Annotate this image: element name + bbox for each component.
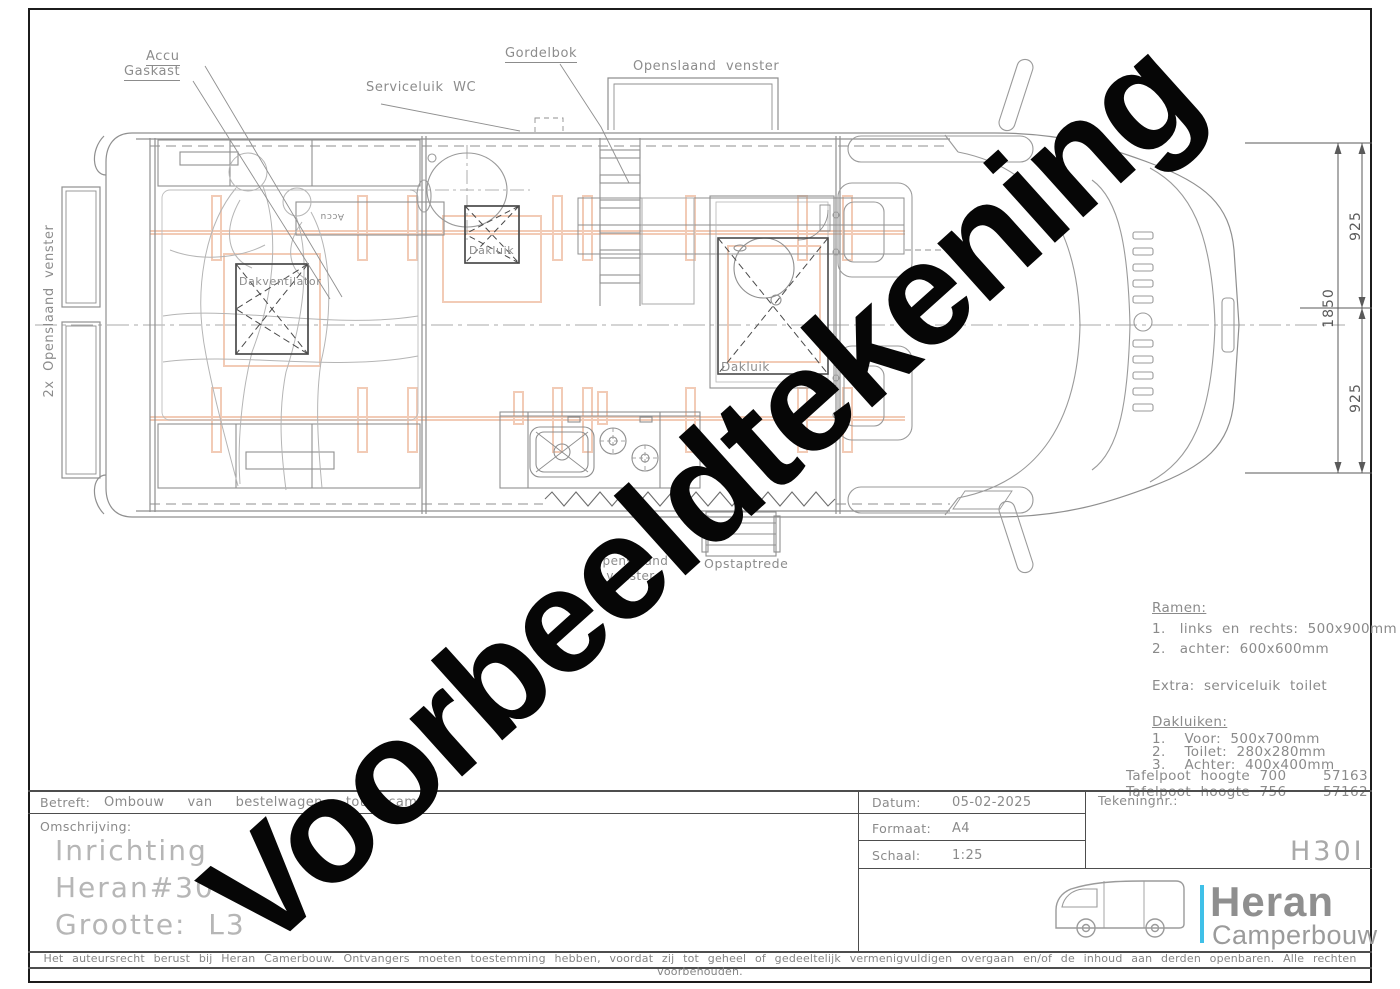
omschrijving-line-3: Grootte: L3: [55, 908, 246, 941]
camper-floorplan-drawing: [0, 0, 1400, 989]
titleblock-col-divider-1: [858, 790, 859, 951]
dakluiken-title: Dakluiken:: [1152, 714, 1227, 730]
dim-925-voor: 925: [1348, 211, 1364, 241]
openslaand-venster-left-label: 2x Openslaand venster: [43, 225, 57, 398]
tekeningnr-value: H30I: [1290, 836, 1365, 867]
titleblock-top-border: [28, 790, 1372, 792]
grille-slats: [1133, 232, 1153, 411]
copyright-text: Het auteursrecht berust bij Heran Camerb…: [28, 952, 1372, 978]
drawing-sheet: Accu Gaskast Serviceluik WC Gordelbok Op…: [0, 0, 1400, 989]
opstaptrede-step: [702, 512, 780, 556]
schaal-label: Schaal:: [872, 848, 921, 863]
formaat-label: Formaat:: [872, 821, 931, 836]
betreft-row-border: [28, 813, 1085, 814]
datum-value: 05-02-2025: [952, 795, 1032, 810]
tafelpoot-2-code: 57162: [1323, 784, 1368, 800]
logo-subtitle-text: Camperbouw: [1212, 920, 1378, 951]
tafelpoot-row-1: Tafelpoot hoogte 700 57163: [1126, 768, 1368, 784]
dimension-lines: [1245, 143, 1372, 473]
ramen-item-1: 1. links en rechts: 500x900mm: [1152, 621, 1397, 637]
opstaptrede-label: Opstaptrede: [704, 557, 788, 571]
top-window-bracket: [608, 78, 778, 130]
datum-label: Datum:: [872, 795, 921, 810]
tafelpoot-1-code: 57163: [1323, 768, 1368, 784]
titleblock-col-divider-2: [1085, 790, 1086, 868]
dakluik-toilet-hatch: [718, 238, 828, 374]
omschrijving-line-2: Heran#30: [55, 871, 215, 904]
schaal-value: 1:25: [952, 848, 983, 863]
dakluik-toilet-label: Dakluik: [721, 361, 770, 374]
mirror-right-icon: [997, 499, 1035, 574]
omschrijving-line-1: Inrichting: [55, 834, 208, 867]
serviceluik-wc-label: Serviceluik WC: [366, 81, 476, 95]
gordelbok-label: Gordelbok: [505, 47, 577, 63]
dim-925-achter: 925: [1348, 383, 1364, 413]
omschrijving-label: Omschrijving:: [40, 819, 132, 834]
betreft-label: Betreft:: [40, 795, 90, 810]
openslaand-venster-bottom-label: Openslaand venster: [583, 554, 678, 584]
mirror-left-icon: [997, 57, 1035, 132]
betreft-value: Ombouw van bestelwagen tot cam: [104, 795, 417, 810]
openslaand-venster-top-label: Openslaand venster: [633, 60, 779, 74]
sleeping-figures-sketch: [163, 153, 418, 490]
ramen-extra: Extra: serviceluik toilet: [1152, 678, 1327, 694]
dakluik-voor-label: Dakluik: [469, 245, 514, 257]
van-logo-icon: [1056, 881, 1184, 937]
cab-seats: [833, 183, 912, 440]
formaat-row-border: [858, 840, 1085, 841]
door-opening-zigzag: [545, 492, 835, 506]
ramen-item-2: 2. achter: 600x600mm: [1152, 641, 1329, 657]
logo-brand-text: Heran: [1210, 878, 1334, 926]
gaskast-label: Gaskast: [124, 65, 180, 81]
ramen-title: Ramen:: [1152, 600, 1206, 616]
tekeningnr-label: Tekeningnr.:: [1098, 793, 1178, 808]
logo-accent-bar: [1200, 885, 1204, 943]
tafelpoot-1-label: Tafelpoot hoogte 700: [1126, 768, 1286, 784]
dim-1850-totaal: 1850: [1321, 288, 1337, 328]
side-windows: [62, 187, 100, 478]
gordelbok-bench: [600, 138, 694, 306]
schaal-row-border: [858, 868, 1372, 869]
dakventilator-label: Dakventilator: [239, 276, 321, 288]
toilet-area: [410, 145, 530, 240]
formaat-value: A4: [952, 821, 970, 836]
accu-klein-label: Accu: [320, 210, 344, 220]
